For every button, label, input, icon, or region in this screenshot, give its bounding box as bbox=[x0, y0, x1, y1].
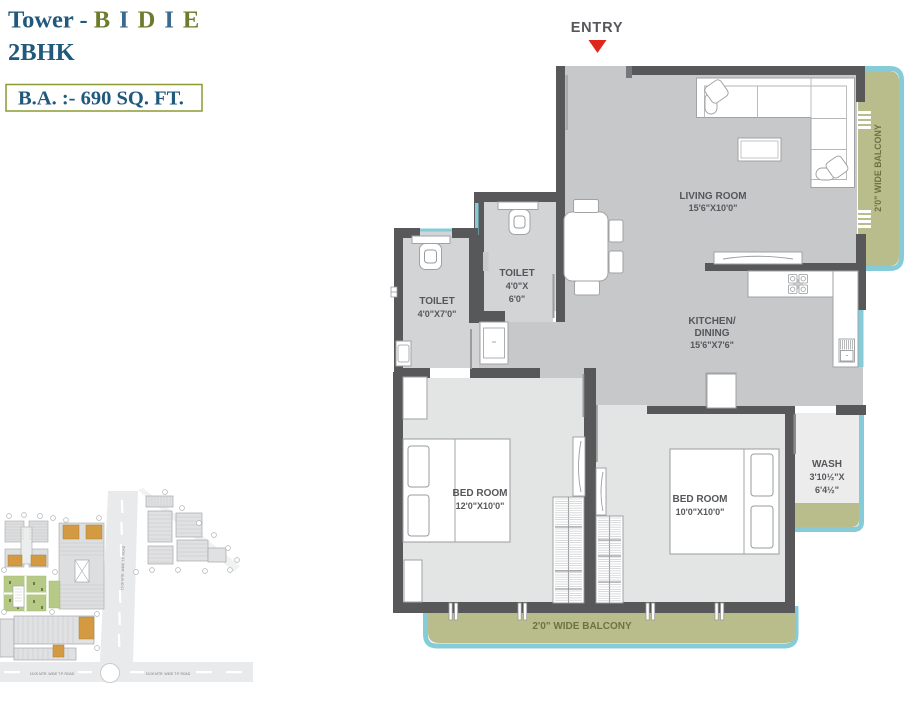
svg-text:2'0" WIDE BALCONY: 2'0" WIDE BALCONY bbox=[532, 621, 632, 632]
svg-text:15.00 MTR. WIDE T.P. ROAD: 15.00 MTR. WIDE T.P. ROAD bbox=[146, 672, 191, 676]
svg-text:6'4½": 6'4½" bbox=[815, 485, 839, 495]
svg-text:12'0"X10'0": 12'0"X10'0" bbox=[456, 501, 505, 511]
svg-text:2BHK: 2BHK bbox=[8, 39, 75, 66]
svg-text:15'6"X10'0": 15'6"X10'0" bbox=[689, 203, 738, 213]
svg-text:TOILET: TOILET bbox=[419, 296, 454, 307]
svg-text:10'0"X10'0": 10'0"X10'0" bbox=[676, 507, 725, 517]
svg-text:ENTRY: ENTRY bbox=[571, 20, 624, 36]
svg-text:15'6"X7'6": 15'6"X7'6" bbox=[690, 340, 734, 350]
svg-text:6'0": 6'0" bbox=[509, 294, 525, 304]
svg-text:DINING: DINING bbox=[695, 328, 730, 339]
svg-text:BED ROOM: BED ROOM bbox=[673, 494, 728, 505]
svg-text:4'0"X7'0": 4'0"X7'0" bbox=[418, 309, 457, 319]
svg-text:15.00 MTR. WIDE T.P. ROAD: 15.00 MTR. WIDE T.P. ROAD bbox=[30, 672, 75, 676]
svg-text:B.A. :- 690 SQ. FT.: B.A. :- 690 SQ. FT. bbox=[18, 88, 184, 110]
svg-text:KITCHEN/: KITCHEN/ bbox=[688, 316, 735, 327]
svg-text:BED ROOM: BED ROOM bbox=[453, 488, 508, 499]
svg-text:LIVING ROOM: LIVING ROOM bbox=[679, 191, 746, 202]
svg-text:Tower - BIDIE: Tower - BIDIE bbox=[8, 7, 199, 34]
svg-text:4'0"X: 4'0"X bbox=[506, 281, 528, 291]
svg-text:TOILET: TOILET bbox=[499, 268, 534, 279]
svg-text:3'10½"X: 3'10½"X bbox=[810, 472, 845, 482]
svg-text:WASH: WASH bbox=[812, 459, 842, 470]
svg-text:2'0" WIDE BALCONY: 2'0" WIDE BALCONY bbox=[873, 124, 883, 212]
